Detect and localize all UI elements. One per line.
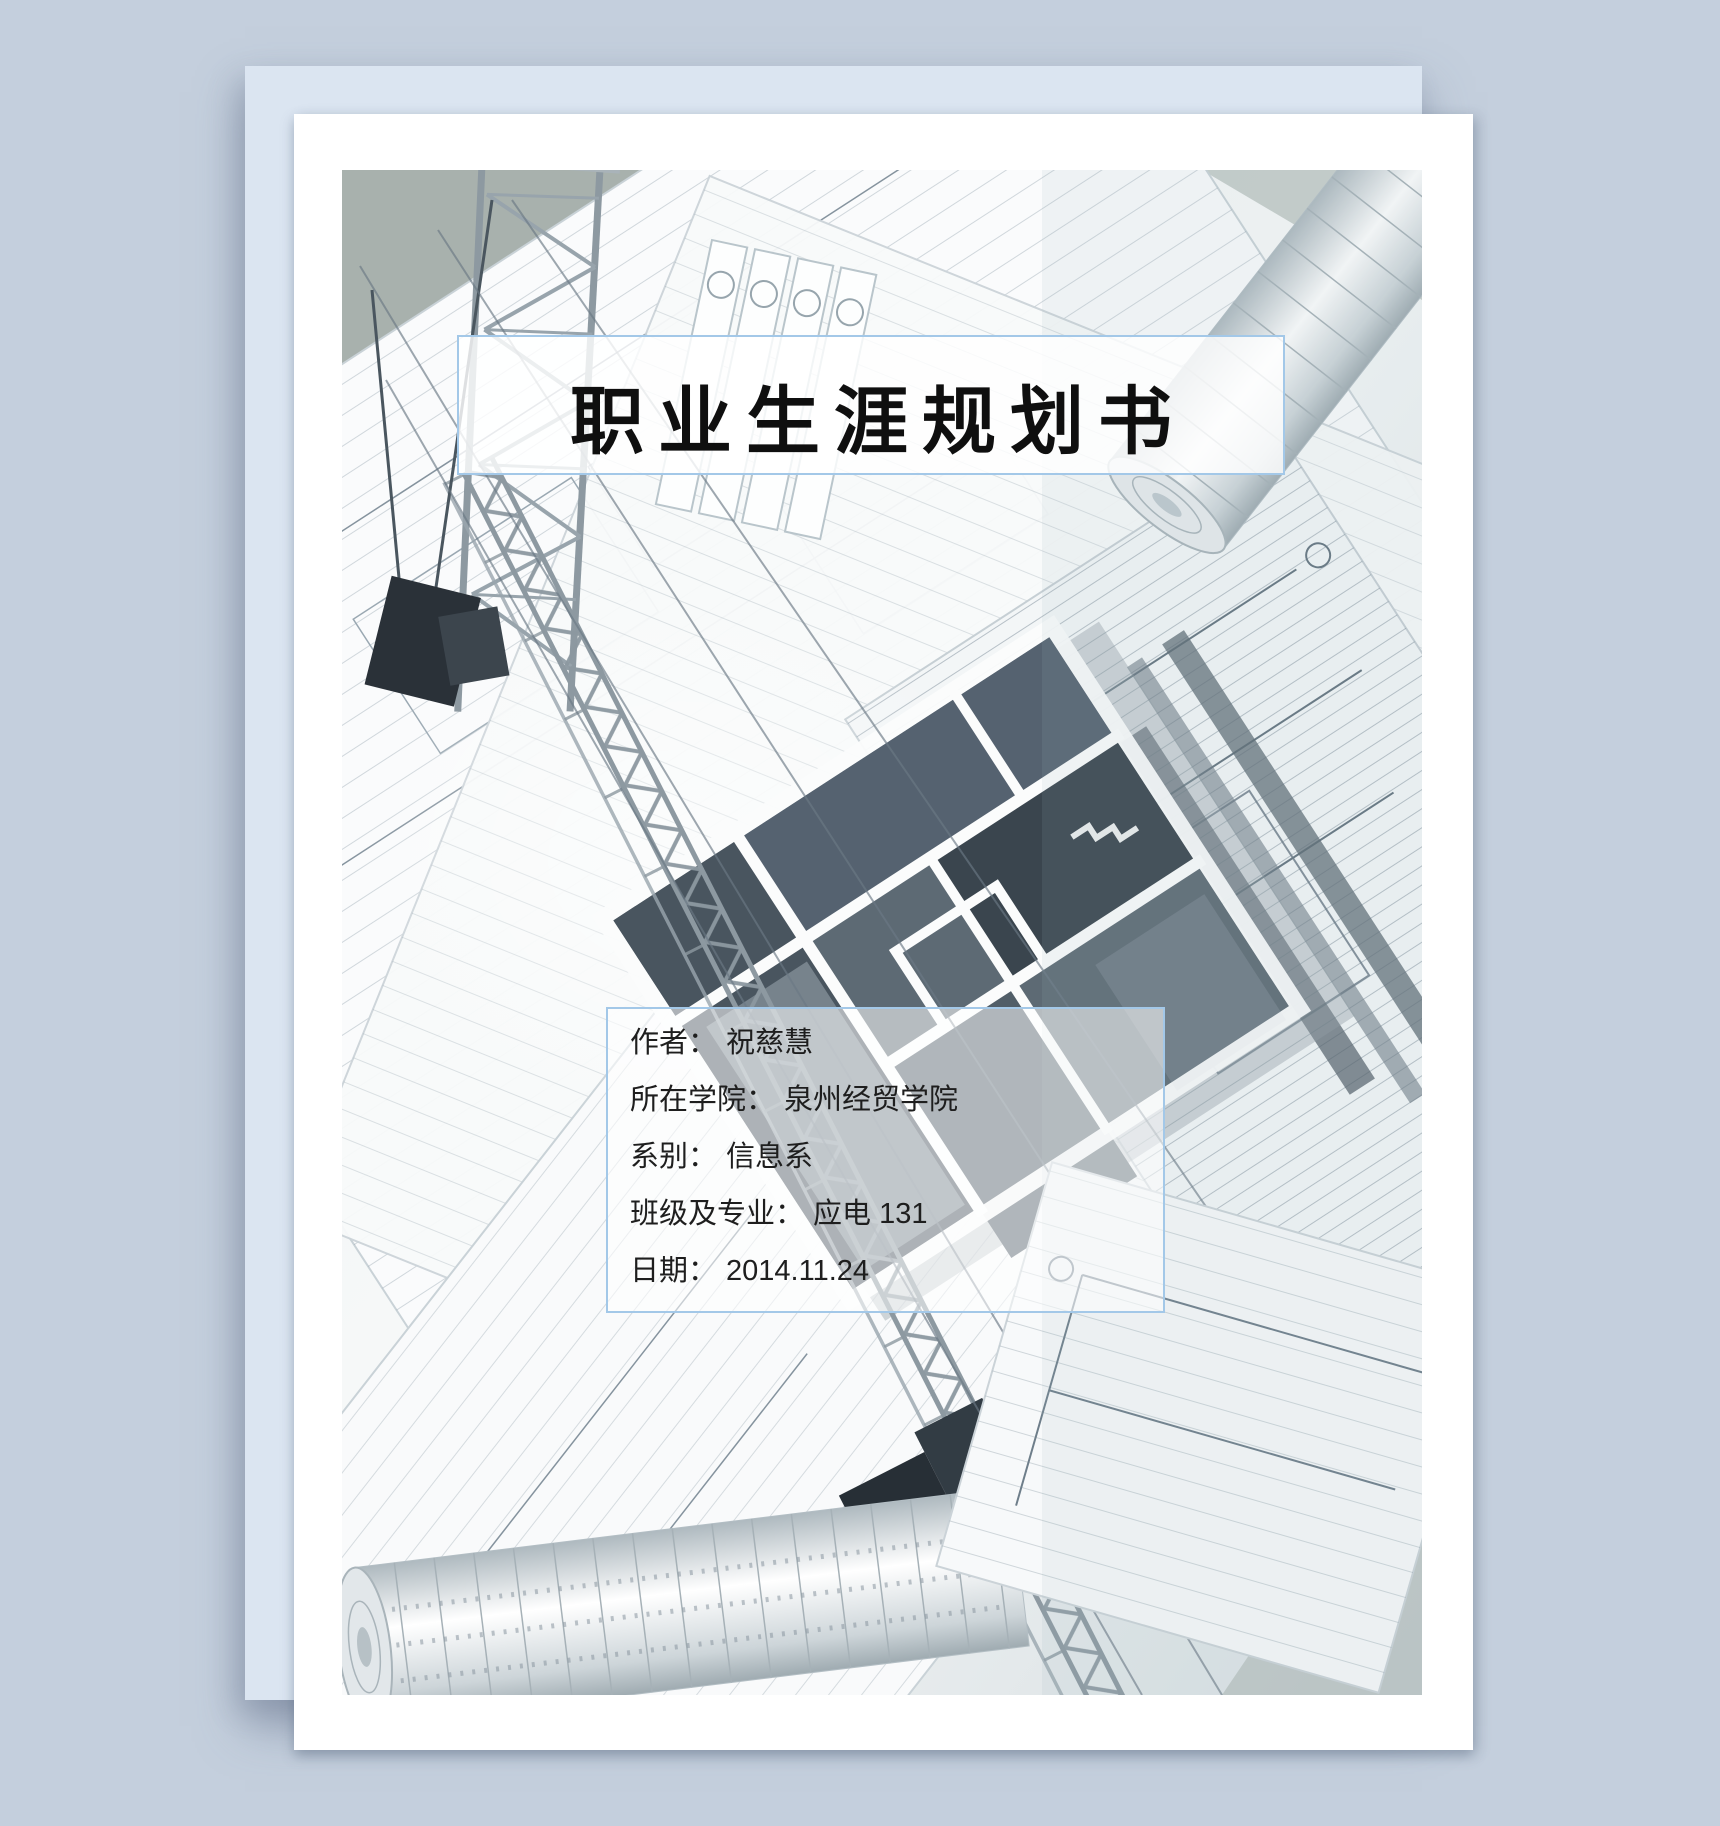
desk-background: 职业生涯规划书 作者：祝慈慧 所在学院：泉州经贸学院 系别：信息系 班级及专业：… <box>0 0 1720 1826</box>
info-line-author: 作者：祝慈慧 <box>630 1015 1163 1072</box>
document-title: 职业生涯规划书 <box>556 362 1186 469</box>
date-value: 2014.11.24 <box>726 1255 869 1287</box>
department-label: 系别： <box>630 1141 717 1173</box>
class-major-label: 班级及专业： <box>630 1198 804 1230</box>
date-label: 日期： <box>630 1255 717 1287</box>
info-line-class-major: 班级及专业：应电 131 <box>630 1186 1163 1243</box>
college-label: 所在学院： <box>630 1084 775 1116</box>
author-value: 祝慈慧 <box>726 1027 813 1059</box>
class-major-value: 应电 131 <box>813 1198 927 1230</box>
college-value: 泉州经贸学院 <box>784 1084 958 1116</box>
info-box: 作者：祝慈慧 所在学院：泉州经贸学院 系别：信息系 班级及专业：应电 131 日… <box>606 1007 1165 1313</box>
info-line-department: 系别：信息系 <box>630 1129 1163 1186</box>
department-value: 信息系 <box>726 1141 813 1173</box>
info-line-date: 日期：2014.11.24 <box>630 1243 1163 1300</box>
document-page: 职业生涯规划书 作者：祝慈慧 所在学院：泉州经贸学院 系别：信息系 班级及专业：… <box>294 114 1473 1750</box>
info-line-college: 所在学院：泉州经贸学院 <box>630 1072 1163 1129</box>
title-box: 职业生涯规划书 <box>457 335 1285 475</box>
author-label: 作者： <box>630 1027 717 1059</box>
